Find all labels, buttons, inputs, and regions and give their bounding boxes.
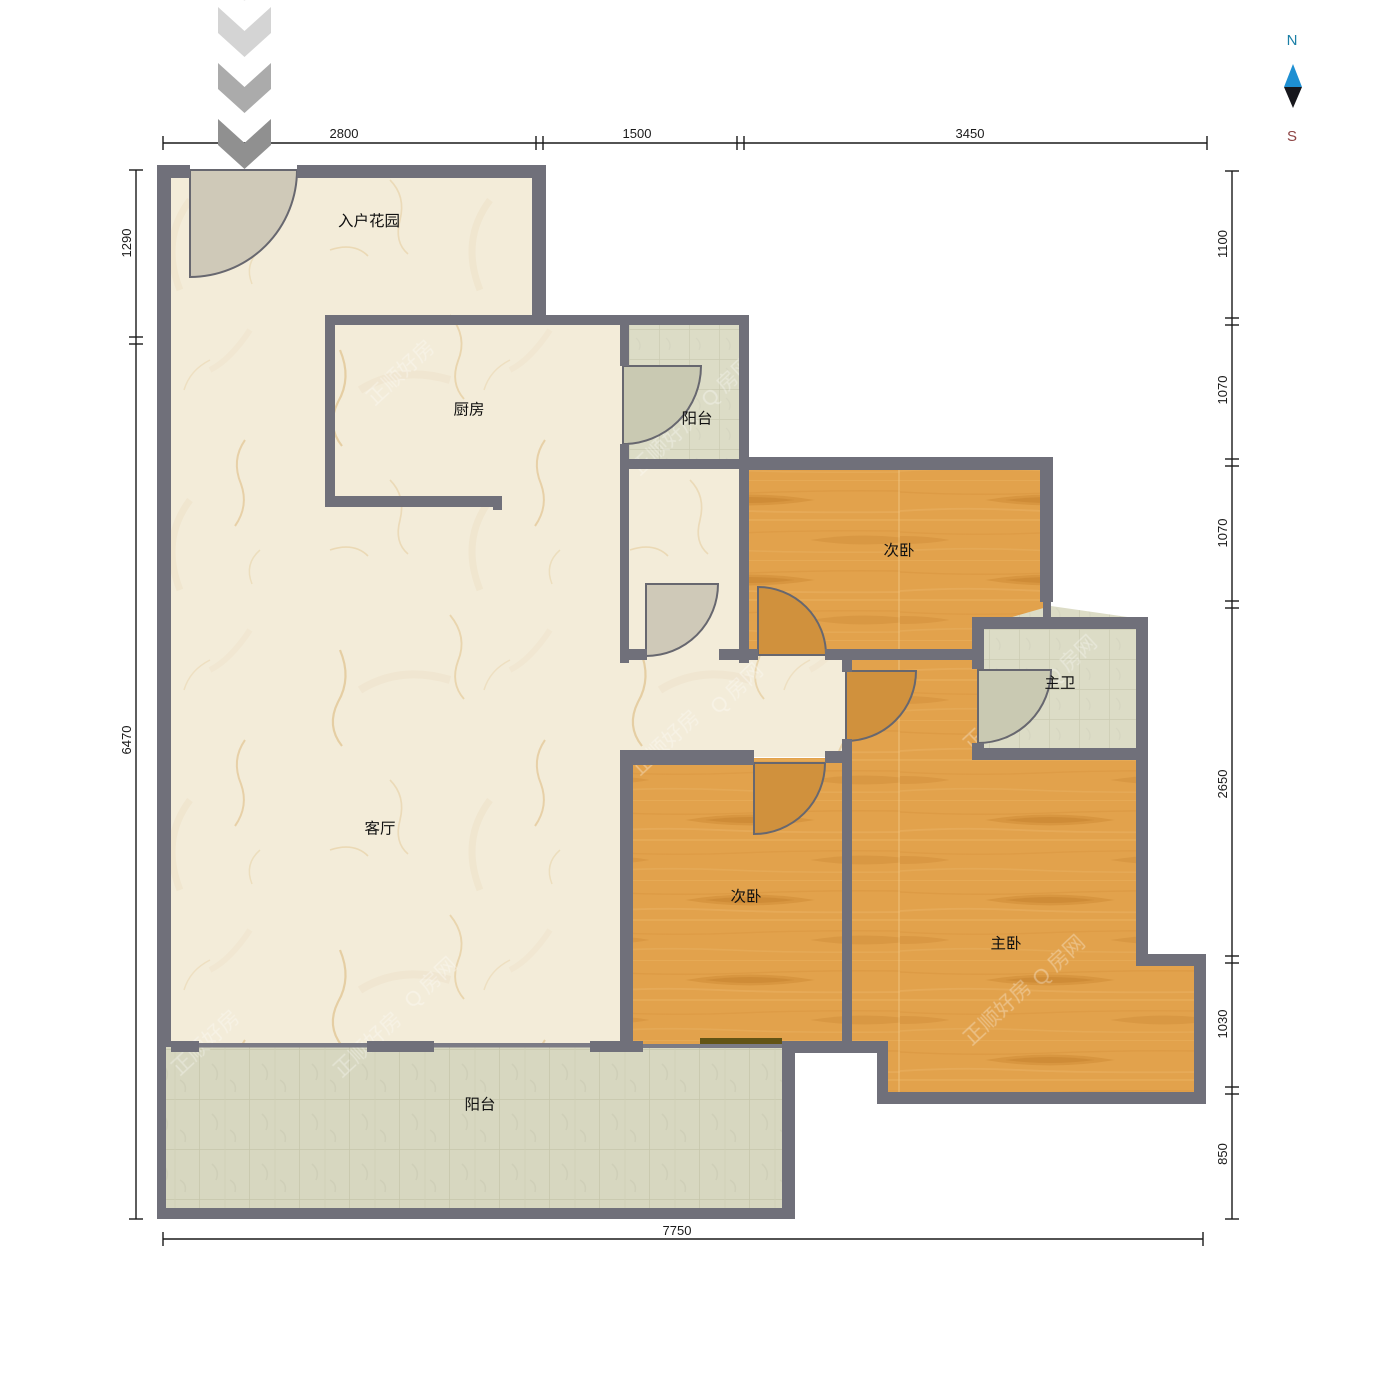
svg-text:3450: 3450 bbox=[956, 126, 985, 141]
svg-text:850: 850 bbox=[1215, 1143, 1230, 1165]
svg-text:6470: 6470 bbox=[119, 726, 134, 755]
svg-text:1290: 1290 bbox=[119, 229, 134, 258]
svg-text:N: N bbox=[1287, 32, 1298, 49]
svg-text:S: S bbox=[1287, 128, 1297, 145]
svg-text:1500: 1500 bbox=[623, 126, 652, 141]
svg-text:7750: 7750 bbox=[663, 1223, 692, 1238]
svg-text:1100: 1100 bbox=[1215, 230, 1230, 258]
svg-text:1030: 1030 bbox=[1215, 1010, 1230, 1039]
svg-text:2650: 2650 bbox=[1215, 770, 1230, 799]
svg-text:1070: 1070 bbox=[1215, 519, 1230, 548]
svg-text:2800: 2800 bbox=[330, 126, 359, 141]
svg-text:1070: 1070 bbox=[1215, 376, 1230, 405]
